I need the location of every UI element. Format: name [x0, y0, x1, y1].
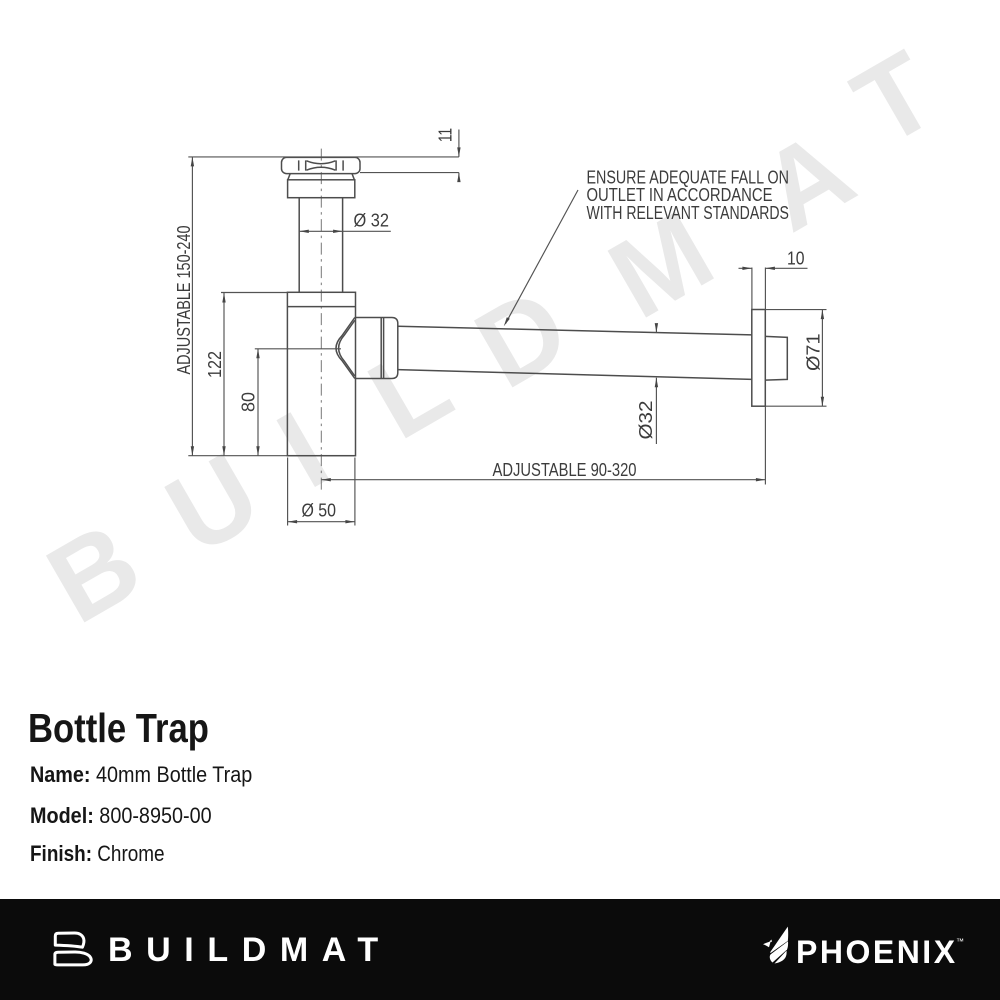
svg-text:10: 10	[787, 249, 805, 269]
svg-text:11: 11	[436, 128, 456, 142]
svg-text:80: 80	[239, 392, 259, 412]
svg-text:ADJUSTABLE 90-320: ADJUSTABLE 90-320	[493, 460, 637, 480]
svg-text:ADJUSTABLE 150-240: ADJUSTABLE 150-240	[174, 226, 194, 375]
svg-text:Ø71: Ø71	[804, 334, 824, 372]
svg-text:Ø 50: Ø 50	[302, 501, 337, 521]
svg-text:Ø32: Ø32	[636, 401, 656, 440]
svg-text:Ø 32: Ø 32	[354, 211, 390, 231]
svg-text:WITH RELEVANT STANDARDS: WITH RELEVANT STANDARDS	[587, 202, 789, 223]
svg-text:122: 122	[205, 351, 225, 378]
